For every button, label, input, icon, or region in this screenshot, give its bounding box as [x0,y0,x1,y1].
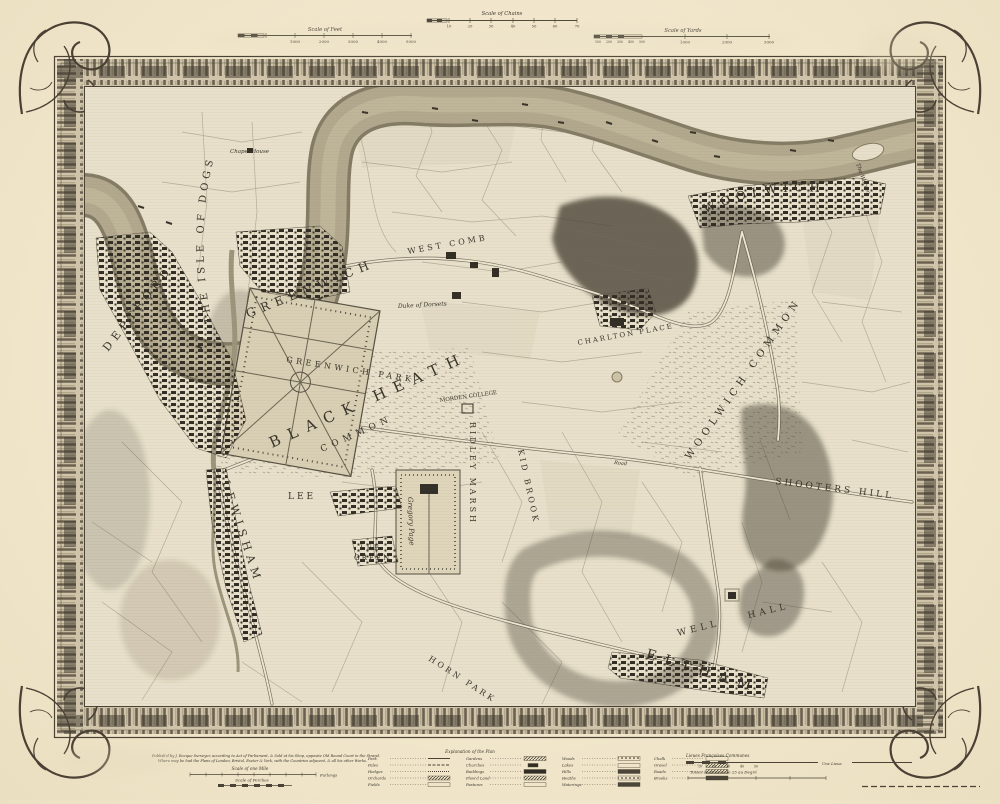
map-label-chapel-house: Chapel House [230,149,270,155]
legend-entry: Lakes [561,763,573,768]
legend-entry: Plow'd Land [465,776,490,781]
map-label-lee-green-2: GREEN [354,554,391,562]
map-label-gregory-page: Gregory Page [406,497,416,546]
legend-entry: Heaths [561,776,576,781]
legend-entry: Pales [367,763,378,768]
legend-entry: Gardens [466,756,482,761]
map-label-lee-green-1: LEE [360,544,381,552]
scale-leagues-title: Lieues Françoises Communes [685,753,749,758]
scale-toises-title: Toises de France de 25 au Degré [690,770,757,775]
leagues-tick: 30 [726,765,730,769]
leagues-unit-label: Une Lieue [822,761,843,766]
scale-chains-title: Scale of Chains [482,11,523,17]
scale-of-one-mile: Scale of one Mile Furlongs [190,766,337,778]
legend-entry: Gravel [654,763,668,768]
legend-entry: Hills [561,769,571,774]
french-scales: Lieues Françoises Communes 10 20 30 40 5… [685,753,980,787]
scale-of-perches: Scale of Perches [218,778,292,788]
leagues-tick: 50 [754,765,758,769]
scale-mile-title: Scale of one Mile [232,766,269,771]
legend-entry: Hedges [367,769,383,774]
map-canvas: Scale of Feet 1000 2000 3000 4000 5000 S… [0,0,1000,800]
legend-entry: Fields [367,782,380,787]
leagues-tick: 20 [712,765,716,769]
map-area: THE ISLE OF DOGS Chapel House DEPTFORD G… [70,87,916,706]
legend-entry: Churches [466,763,484,768]
legend-entry: Park [367,756,377,761]
map-label-ridley-marsh: RIDLEY MARSH [468,422,477,525]
legend-entry: Waterings [562,782,582,787]
map-label-lee: LEE [288,492,316,502]
leagues-tick: 10 [698,765,702,769]
legend-entry: Brooks [653,776,667,781]
legend-entry: Pastures [465,782,483,787]
legend-entry: Orchards [368,776,386,781]
leagues-tick: 40 [740,765,744,769]
legend-entry: Buildings [465,769,484,774]
legend-entry: Roads [653,769,666,774]
legend-title: Explanation of the Plan [444,749,495,754]
antique-map-sheet: Scale of Feet 1000 2000 3000 4000 5000 S… [0,0,1000,800]
legend-entry: Chalk [654,756,666,761]
scale-perches-title: Scale of Perches [235,778,268,783]
legend: Explanation of the Plan Park Pales Hedge… [367,749,728,787]
bottom-margin: Publish'd by J. Rocque Surveyor, accordi… [151,749,980,787]
imprint-line-1: Publish'd by J. Rocque Surveyor, accordi… [151,754,380,758]
imprint-line-2: Where may be had the Plans of London, Br… [158,759,367,763]
mile-unit-label: Furlongs [319,773,337,778]
legend-entry: Woods [562,756,575,761]
